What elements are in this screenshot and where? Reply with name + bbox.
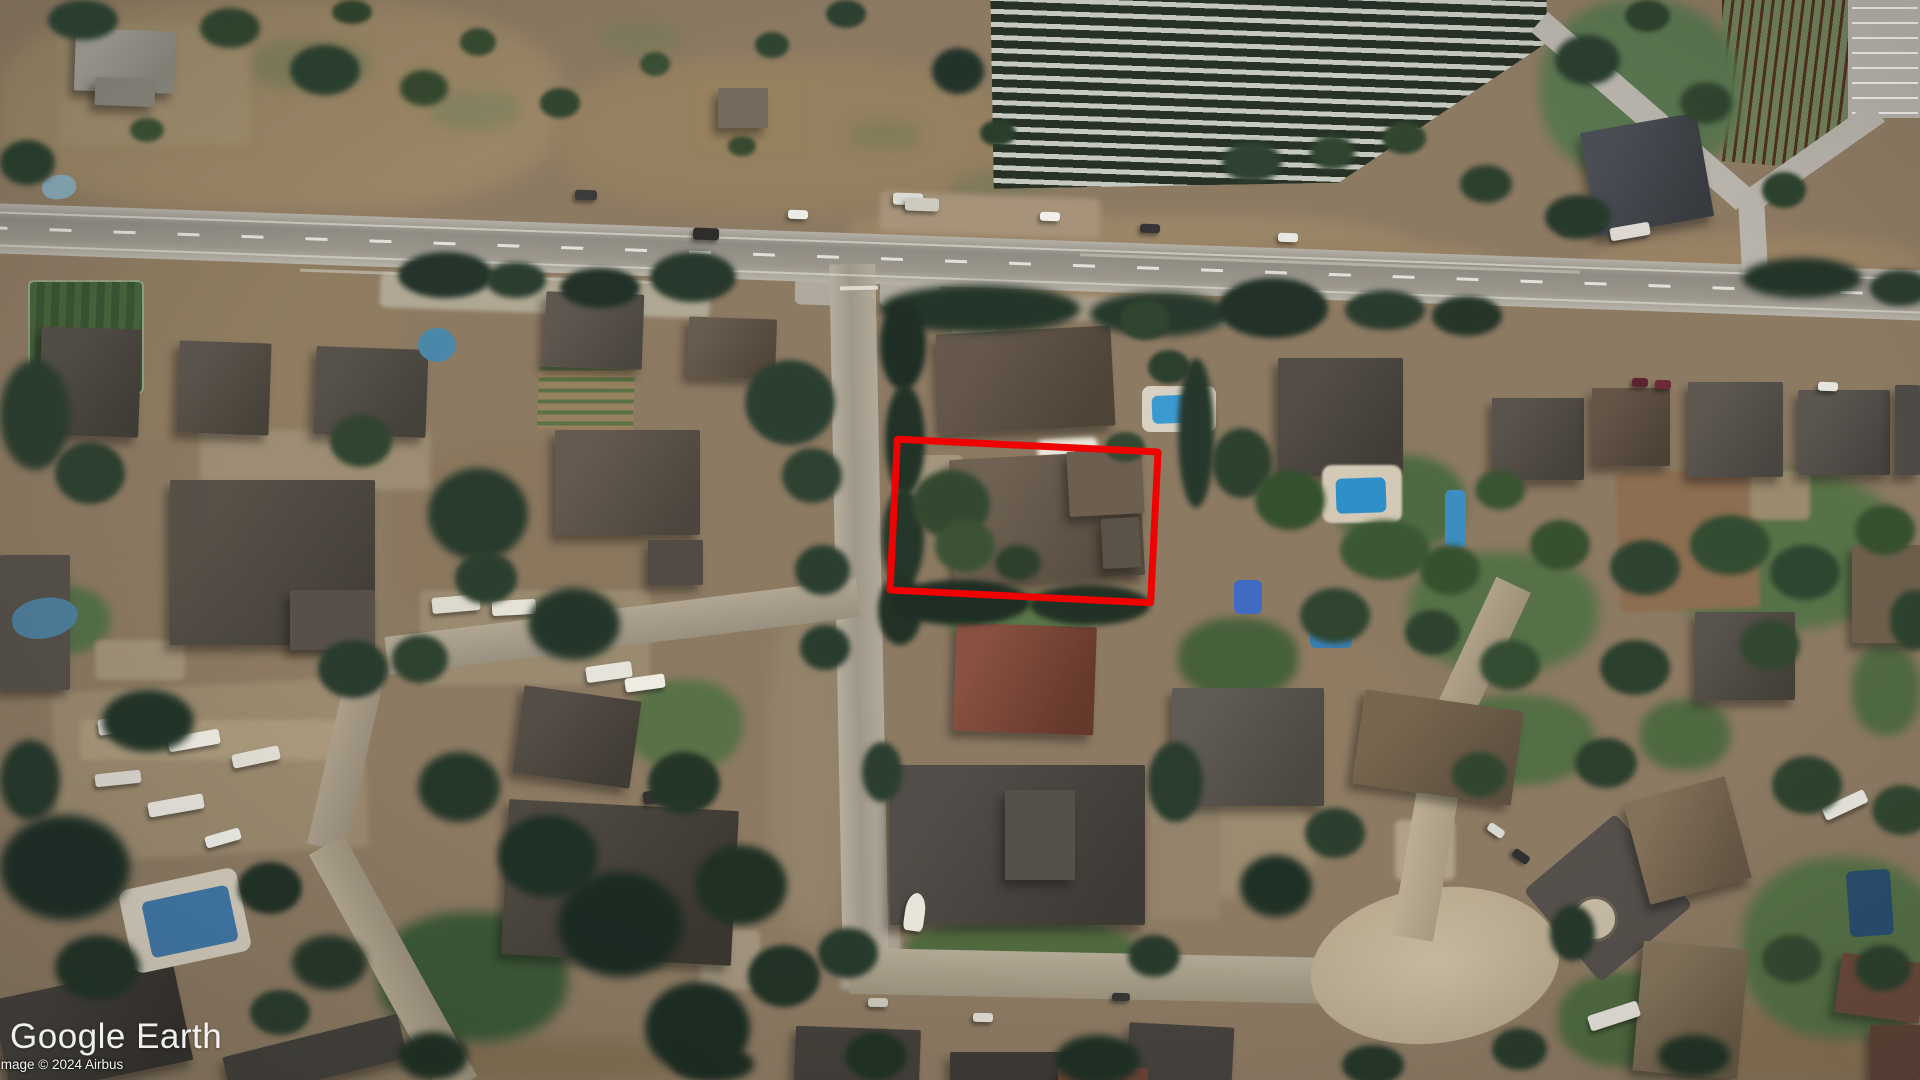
google-earth-logo: Google Earth	[10, 1017, 222, 1057]
hedge	[560, 268, 640, 308]
hedge	[486, 262, 546, 298]
tree	[0, 815, 130, 920]
tree	[392, 635, 448, 683]
pool-se	[1846, 869, 1894, 938]
house-row-a2	[176, 340, 271, 435]
car-bottomroad-2	[973, 1013, 993, 1022]
tree	[1420, 545, 1480, 595]
tree	[250, 990, 310, 1035]
tree	[130, 118, 164, 142]
tree	[1492, 1028, 1547, 1070]
tree	[1762, 935, 1822, 983]
hedge	[1742, 258, 1862, 298]
car-road-2	[693, 228, 719, 241]
tree	[818, 928, 878, 978]
tree	[1342, 1045, 1404, 1080]
tree	[1148, 742, 1203, 822]
scrub-4	[850, 120, 920, 150]
tree	[418, 752, 500, 822]
tree	[748, 945, 820, 1007]
tree	[1530, 520, 1590, 570]
tree	[1855, 945, 1911, 991]
tree	[318, 640, 388, 698]
tree	[1480, 640, 1540, 690]
house-dark-big-wing	[1005, 790, 1075, 880]
satellite-map-canvas[interactable]: Google Earth Image © 2024 Airbus	[0, 0, 1920, 1080]
tree	[455, 552, 517, 604]
tree	[1575, 738, 1637, 788]
tree	[1240, 855, 1312, 917]
car-road-5	[1140, 224, 1160, 234]
tree	[1460, 165, 1512, 203]
car-parked-1	[1632, 378, 1648, 388]
pool-round-yard	[418, 328, 456, 362]
tree	[1300, 588, 1370, 643]
house-ne-5	[1798, 390, 1890, 475]
tree	[695, 845, 787, 925]
tree	[1555, 35, 1620, 85]
garden-rows	[537, 366, 635, 431]
imagery-attribution: Image © 2024 Airbus	[0, 1057, 123, 1072]
house-ne-2	[1492, 398, 1584, 480]
tree	[862, 742, 902, 802]
house-ne-4	[1688, 382, 1783, 477]
tree	[1222, 142, 1282, 182]
tree	[102, 690, 194, 752]
stop-line	[840, 286, 878, 291]
tree	[200, 8, 260, 48]
tree	[640, 52, 670, 76]
tree	[932, 48, 984, 94]
house-trailer-prop	[555, 430, 700, 535]
lawn-right-edge	[1852, 645, 1920, 735]
tree	[540, 88, 580, 118]
house-north-of-parcel	[936, 325, 1116, 434]
tree	[1610, 540, 1680, 595]
tree	[980, 120, 1016, 146]
hedge-road-east-1	[880, 300, 926, 390]
tree	[1740, 620, 1800, 670]
tree	[55, 935, 140, 1000]
tree	[1255, 470, 1325, 530]
shed-north	[718, 88, 768, 128]
tree	[1550, 905, 1595, 961]
tree	[1310, 135, 1355, 170]
driveway-h6	[95, 640, 185, 680]
tree	[460, 28, 496, 56]
tree	[332, 0, 372, 24]
tree	[728, 136, 756, 156]
tree	[845, 1032, 907, 1080]
house-se-red-2	[1870, 1025, 1920, 1080]
tree	[48, 0, 118, 40]
tree	[1690, 515, 1770, 575]
tree	[0, 740, 60, 820]
tree	[398, 1032, 468, 1080]
pool-narrow	[1445, 490, 1466, 548]
hedge	[398, 252, 493, 298]
tree	[400, 70, 448, 106]
hedge-parcel-east	[1178, 358, 1214, 508]
house-sw-2	[222, 1014, 408, 1080]
parking-lines	[1852, 4, 1918, 114]
car-road-3	[788, 210, 808, 220]
tree	[1452, 752, 1507, 797]
tree	[1405, 610, 1460, 655]
scrub-3	[600, 20, 680, 56]
tree	[1872, 785, 1920, 835]
tree	[1600, 640, 1670, 695]
tree	[428, 468, 528, 560]
house-mid-west	[512, 685, 641, 789]
car-road-6	[1278, 233, 1298, 243]
tree	[755, 32, 789, 58]
tree	[1770, 545, 1840, 600]
house-red-tile	[953, 623, 1097, 736]
dirt-h18-south	[1750, 470, 1810, 520]
tarp-blue	[1234, 580, 1262, 614]
car-culdesac-2	[1511, 848, 1531, 866]
property-highlight-rectangle	[886, 436, 1161, 607]
tree	[800, 625, 850, 670]
lawn-culdesac-ne	[1640, 700, 1730, 770]
bottom-road-east	[850, 948, 1351, 1004]
tree	[745, 360, 835, 445]
house-ne-6	[1895, 385, 1920, 475]
tree	[782, 448, 842, 503]
tree	[238, 862, 302, 914]
tree	[1055, 1035, 1140, 1080]
lawn-tarp-area	[1178, 618, 1298, 698]
tree	[1625, 0, 1670, 32]
tree	[1680, 82, 1732, 124]
tree	[1762, 172, 1806, 208]
truck-shoulder	[905, 197, 939, 211]
car-road-4	[1040, 212, 1060, 222]
hedge	[650, 252, 736, 302]
car-parked-3	[1818, 382, 1838, 392]
tree	[1658, 1035, 1730, 1077]
tree	[55, 442, 125, 504]
tree	[1340, 520, 1430, 580]
tree	[1475, 470, 1525, 510]
tree	[1432, 296, 1502, 336]
tree	[1120, 300, 1170, 340]
car-parked-2	[1655, 380, 1671, 390]
tree	[290, 45, 360, 95]
tree	[330, 415, 392, 467]
car-culdesac-1	[1486, 822, 1506, 840]
tree	[826, 0, 866, 28]
tree	[648, 752, 720, 814]
tree	[1855, 505, 1915, 555]
house-ne-3	[1592, 388, 1670, 466]
tree-cluster-south	[558, 872, 683, 977]
tree	[0, 140, 55, 185]
car-bottomroad-1	[868, 998, 888, 1007]
tree	[1218, 278, 1328, 338]
car-bottomroad-3	[1112, 993, 1130, 1001]
tree	[1545, 195, 1611, 239]
tree	[1305, 808, 1365, 858]
building-topleft-wing	[95, 77, 156, 107]
pool-ne2	[1335, 477, 1386, 514]
car-road-1	[575, 190, 597, 201]
tree	[1772, 756, 1842, 814]
tree	[292, 935, 367, 990]
tree	[0, 360, 70, 470]
tree	[528, 588, 620, 660]
house-ne-pool	[1278, 358, 1403, 476]
tree	[795, 545, 850, 595]
garage-trailer-prop	[648, 540, 703, 585]
tree	[1128, 935, 1180, 977]
tree	[672, 1046, 754, 1080]
tree	[1345, 290, 1425, 330]
tree	[1382, 122, 1426, 154]
